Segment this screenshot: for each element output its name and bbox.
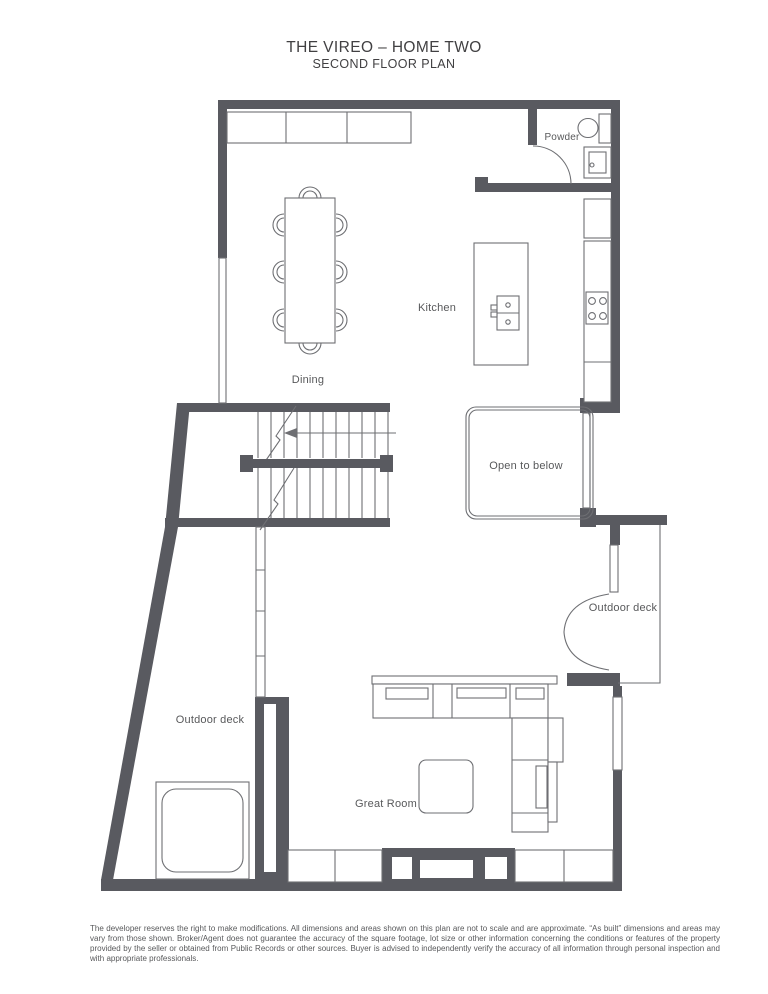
sofa-arm bbox=[548, 762, 557, 822]
great-room-west-window bbox=[256, 527, 265, 697]
stairs bbox=[240, 406, 396, 530]
stair-rail-cap-right bbox=[380, 455, 393, 472]
stair-rail-cap-left bbox=[240, 455, 253, 472]
label-great-room: Great Room bbox=[355, 798, 417, 810]
sink-faucet-lower bbox=[491, 312, 497, 317]
open-below-east-window bbox=[583, 413, 590, 508]
sofa-side-table bbox=[548, 718, 563, 762]
deck-right-top-wall bbox=[580, 515, 667, 525]
stair-break-line-upper bbox=[262, 406, 296, 466]
stair-direction-arrow bbox=[284, 428, 297, 438]
label-outdoor-deck-left: Outdoor deck bbox=[176, 714, 245, 726]
toilet-tank bbox=[599, 114, 611, 143]
stair-top-wall bbox=[177, 403, 390, 412]
label-outdoor-deck-right: Outdoor deck bbox=[589, 602, 658, 614]
disclaimer-text: The developer reserves the right to make… bbox=[90, 924, 720, 964]
great-room-door-stub bbox=[567, 673, 620, 686]
stair-bottom-wall bbox=[165, 518, 390, 527]
upper-counter bbox=[227, 112, 411, 143]
label-open-to-below: Open to below bbox=[489, 460, 563, 472]
floor-plan-page: THE VIREO – HOME TWO SECOND FLOOR PLAN bbox=[0, 0, 768, 994]
stair-rail bbox=[252, 459, 381, 468]
outdoor-deck-left bbox=[156, 782, 249, 879]
stair-treads-lower bbox=[258, 468, 388, 518]
wall-top bbox=[218, 100, 620, 109]
great-room-east-wall-upper bbox=[613, 686, 622, 697]
wall-left-upper bbox=[218, 100, 227, 258]
fireplace-inset-left bbox=[392, 857, 412, 879]
sofa-cushion-3 bbox=[516, 688, 544, 699]
sofa-back bbox=[372, 676, 557, 684]
coffee-table bbox=[419, 760, 473, 813]
stair-west-wall bbox=[165, 403, 190, 527]
label-dining: Dining bbox=[292, 374, 324, 386]
powder-south-wall-end bbox=[475, 177, 488, 192]
label-kitchen: Kitchen bbox=[418, 302, 456, 314]
great-room-east-wall-lower bbox=[613, 770, 622, 891]
sink-faucet-upper bbox=[491, 305, 497, 310]
great-room-west-wall-channel bbox=[264, 704, 276, 872]
great-room-east-window bbox=[613, 697, 622, 770]
toilet bbox=[578, 119, 598, 138]
refrigerator bbox=[584, 199, 611, 238]
fireplace-inset-center bbox=[420, 860, 473, 878]
sofa-chaise-cushion bbox=[536, 766, 547, 808]
dining-area bbox=[273, 187, 347, 354]
wall-right bbox=[611, 100, 620, 413]
powder-door-arc bbox=[533, 146, 571, 184]
sofa-cushion-1 bbox=[386, 688, 428, 699]
walls bbox=[101, 100, 667, 891]
sofa-cushion-2 bbox=[457, 688, 506, 698]
french-door-arc-bottom bbox=[564, 632, 609, 670]
dining-table bbox=[285, 198, 335, 343]
fireplace-inset-right bbox=[485, 857, 507, 879]
hot-tub-inner bbox=[162, 789, 243, 872]
floor-plan-drawing: Powder Kitchen Dining Open to below Outd… bbox=[0, 0, 768, 994]
deck-right-west-stub bbox=[610, 525, 620, 545]
stair-treads-upper bbox=[258, 412, 388, 458]
powder-west-wall bbox=[528, 109, 537, 145]
powder-room bbox=[533, 114, 611, 184]
deck-right-west-window bbox=[610, 545, 618, 592]
powder-south-wall bbox=[475, 183, 618, 192]
label-powder: Powder bbox=[544, 132, 580, 143]
dining-west-window bbox=[219, 258, 226, 403]
